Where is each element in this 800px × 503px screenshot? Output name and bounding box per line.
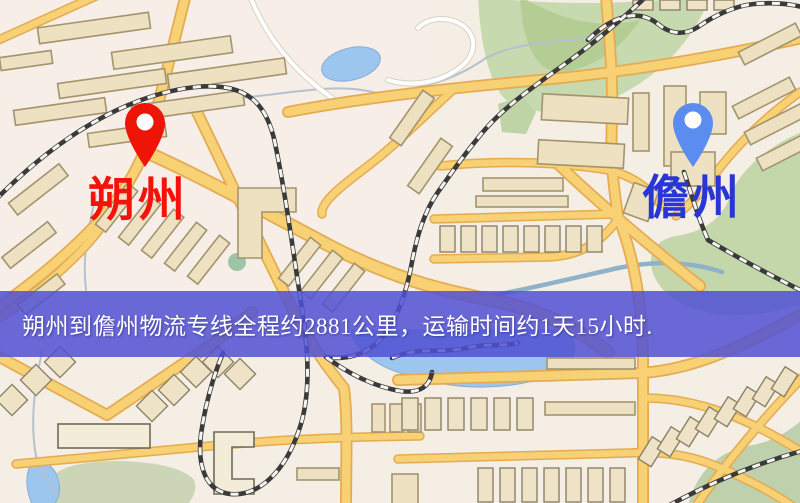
origin-pin[interactable] bbox=[117, 99, 173, 171]
route-banner: 朔州到儋州物流专线全程约2881公里，运输时间约1天15小时. bbox=[0, 291, 800, 357]
logistics-route-map: 朔州 儋州 朔州到儋州物流专线全程约2881公里，运输时间约1天15小时. bbox=[0, 0, 800, 503]
destination-label: 儋州 bbox=[642, 176, 742, 223]
destination-pin[interactable] bbox=[665, 99, 721, 171]
origin-label: 朔州 bbox=[88, 178, 188, 225]
red-map-pin-icon bbox=[117, 99, 173, 171]
map-canvas bbox=[0, 0, 800, 503]
blue-map-pin-icon bbox=[665, 99, 721, 171]
route-banner-text: 朔州到儋州物流专线全程约2881公里，运输时间约1天15小时. bbox=[0, 307, 653, 341]
